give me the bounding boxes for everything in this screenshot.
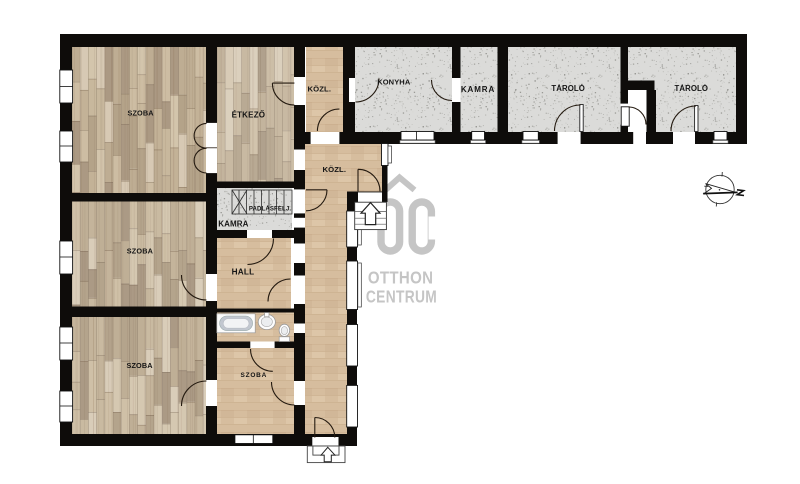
svg-text:KAMRA: KAMRA <box>218 219 248 228</box>
svg-text:ÉTKEZŐ: ÉTKEZŐ <box>232 110 266 119</box>
svg-text:SZOBA: SZOBA <box>127 109 154 118</box>
svg-text:HALL: HALL <box>232 267 255 276</box>
svg-text:KÖZL.: KÖZL. <box>308 84 332 93</box>
svg-text:SZOBA: SZOBA <box>126 361 153 370</box>
svg-text:OTTHON: OTTHON <box>368 268 434 287</box>
svg-text:TÁROLÓ: TÁROLÓ <box>675 84 709 93</box>
svg-text:KAMRA: KAMRA <box>461 85 495 94</box>
svg-text:SZOBA: SZOBA <box>241 372 268 379</box>
svg-text:PADLÁSFELJ.: PADLÁSFELJ. <box>249 205 291 212</box>
svg-text:KÖZL.: KÖZL. <box>323 165 347 174</box>
svg-text:SZOBA: SZOBA <box>127 246 154 255</box>
svg-text:TÁROLÓ: TÁROLÓ <box>551 84 585 93</box>
svg-text:CENTRUM: CENTRUM <box>366 288 437 307</box>
svg-text:KONYHA: KONYHA <box>377 78 411 87</box>
